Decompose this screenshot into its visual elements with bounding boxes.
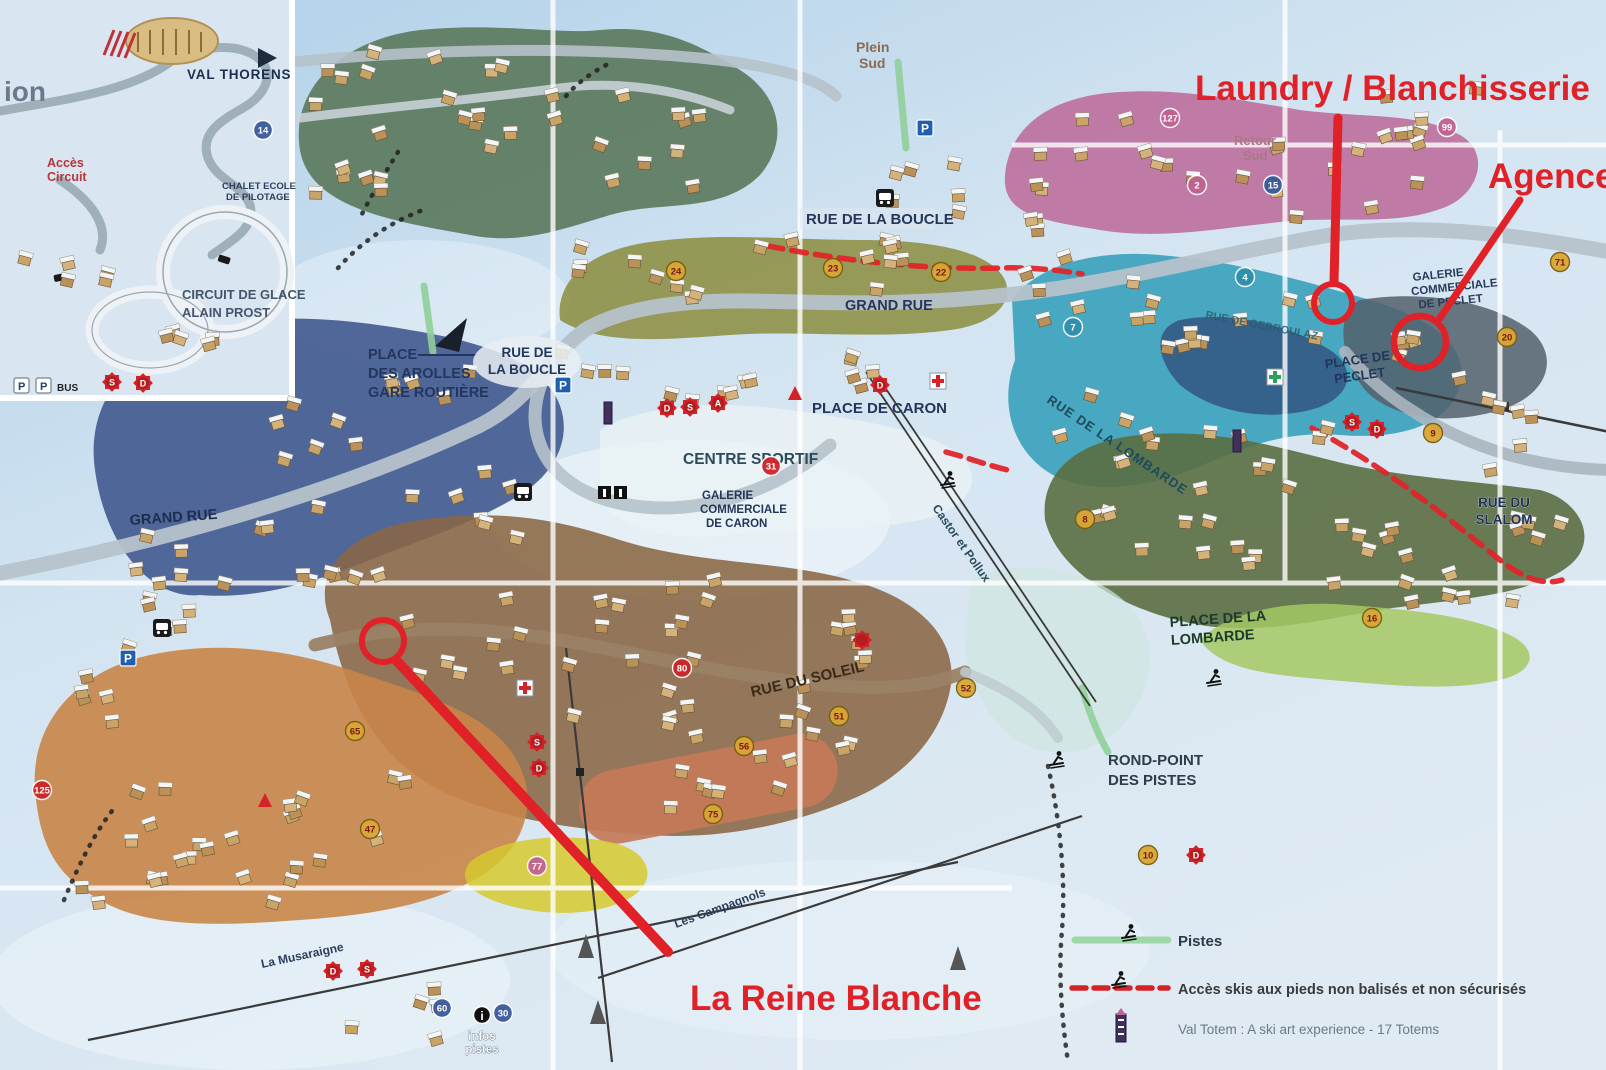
svg-text:S: S xyxy=(1349,418,1355,428)
parking-icon: P xyxy=(18,381,25,393)
parking-icon: P xyxy=(917,120,933,136)
sd-marker: D xyxy=(133,373,153,393)
svg-text:ROND-POINT: ROND-POINT xyxy=(1108,752,1203,769)
resort-name-label: VAL THORENS xyxy=(187,67,291,82)
building-number-badge: 71 xyxy=(1551,253,1570,272)
building xyxy=(405,489,420,503)
legend-acces-label: Accès skis aux pieds non balisés et non … xyxy=(1178,982,1526,998)
building xyxy=(665,581,679,594)
svg-text:8: 8 xyxy=(1082,515,1087,526)
laundry-pointer-line xyxy=(1334,118,1338,282)
building-number-badge: 22 xyxy=(932,263,951,282)
pharmacy-cross-icon xyxy=(1267,369,1283,385)
svg-text:15: 15 xyxy=(1268,181,1279,192)
parking-icon: P xyxy=(40,381,47,393)
building xyxy=(869,282,884,297)
building xyxy=(1326,576,1341,591)
building xyxy=(692,108,707,123)
building xyxy=(427,982,442,996)
building xyxy=(779,714,794,728)
svg-text:56: 56 xyxy=(739,742,750,753)
svg-text:S: S xyxy=(687,403,693,413)
building xyxy=(152,576,167,591)
building xyxy=(663,800,677,813)
building xyxy=(174,544,188,557)
building xyxy=(374,183,388,196)
svg-text:pistes: pistes xyxy=(465,1044,498,1056)
sd-marker xyxy=(852,630,872,650)
svg-text:D: D xyxy=(877,381,884,391)
building xyxy=(75,880,89,893)
svg-text:24: 24 xyxy=(671,267,682,278)
building xyxy=(289,860,304,874)
building-number-badge: 31 xyxy=(762,457,781,476)
svg-text:Sud: Sud xyxy=(1243,148,1268,163)
building xyxy=(173,568,188,582)
building-number-badge: 4 xyxy=(1236,268,1255,287)
svg-text:2: 2 xyxy=(1194,181,1199,192)
building-number-badge: 47 xyxy=(361,820,380,839)
svg-text:i: i xyxy=(480,1009,483,1023)
bus-icon xyxy=(153,619,171,637)
sd-marker: D xyxy=(1367,419,1387,439)
building xyxy=(627,254,642,268)
svg-text:PLACE: PLACE xyxy=(368,347,417,363)
legend-totem-label: Val Totem : A ski art experience - 17 To… xyxy=(1178,1022,1439,1037)
svg-text:S: S xyxy=(534,738,540,748)
sd-marker: D xyxy=(323,961,343,981)
building xyxy=(680,699,695,713)
building-number-badge: 52 xyxy=(957,679,976,698)
building xyxy=(74,684,90,699)
bus-label: BUS xyxy=(57,383,78,394)
svg-text:31: 31 xyxy=(766,462,777,473)
svg-text:SLALOM: SLALOM xyxy=(1476,512,1533,527)
building-number-badge: 56 xyxy=(735,737,754,756)
svg-text:GALERIE: GALERIE xyxy=(702,490,753,502)
svg-text:Plein: Plein xyxy=(856,39,889,55)
svg-text:75: 75 xyxy=(708,810,719,821)
building xyxy=(308,97,322,110)
svg-text:14: 14 xyxy=(258,126,269,137)
building-number-badge: 10 xyxy=(1139,846,1158,865)
building xyxy=(1032,283,1047,297)
building xyxy=(594,619,609,633)
building xyxy=(486,637,501,651)
building-number-badge: 15 xyxy=(1264,176,1283,195)
plein-sud-label: Plein Sud xyxy=(856,39,889,71)
building xyxy=(173,620,188,634)
svg-text:77: 77 xyxy=(532,862,543,873)
building xyxy=(671,107,686,121)
inset-panel: VAL THORENS ion Accès Circuit CHALET ECO… xyxy=(0,0,306,398)
svg-text:D: D xyxy=(536,764,543,774)
street-label-rue-boucle-top: RUE DE LA BOUCLE xyxy=(806,211,954,228)
svg-text:51: 51 xyxy=(834,712,845,723)
svg-text:16: 16 xyxy=(1367,614,1378,625)
svg-text:P: P xyxy=(921,122,929,136)
svg-text:P: P xyxy=(559,379,567,393)
svg-text:S: S xyxy=(109,378,115,388)
ice-circuit-label-1: CIRCUIT DE GLACE xyxy=(182,287,306,302)
building xyxy=(951,188,966,202)
svg-text:GARE ROUTIÈRE: GARE ROUTIÈRE xyxy=(368,384,489,401)
svg-text:4: 4 xyxy=(1242,273,1248,284)
building-number-badge: 75 xyxy=(704,805,723,824)
acces-circuit-label-2: Circuit xyxy=(47,170,87,184)
building xyxy=(1183,326,1197,339)
building xyxy=(312,853,328,868)
svg-text:D: D xyxy=(140,379,147,389)
svg-text:127: 127 xyxy=(1162,114,1178,125)
sd-marker: D xyxy=(529,758,549,778)
reine-blanche-annotation: La Reine Blanche xyxy=(690,979,982,1018)
building xyxy=(1029,177,1044,191)
rue-boucle-sign-2: LA BOUCLE xyxy=(488,362,566,377)
building xyxy=(1456,590,1471,605)
svg-text:D: D xyxy=(1193,851,1200,861)
ice-circuit-label-2: ALAIN PROST xyxy=(182,305,270,320)
svg-text:60: 60 xyxy=(437,1004,448,1015)
building xyxy=(1241,556,1256,570)
svg-text:P: P xyxy=(124,652,132,666)
sd-marker: S xyxy=(1342,412,1362,432)
street-label-grand-rue: GRAND RUE xyxy=(845,298,933,314)
building-number-badge: 77 xyxy=(528,857,547,876)
building xyxy=(1196,545,1211,559)
building-number-badge: 30 xyxy=(494,1004,513,1023)
rue-boucle-sign-1: RUE DE xyxy=(501,345,552,360)
building xyxy=(625,654,639,667)
building xyxy=(1414,112,1429,126)
district-olive-grandrue xyxy=(560,237,1008,339)
building-number-badge: 60 xyxy=(433,999,452,1018)
building-number-badge: 80 xyxy=(673,659,692,678)
building-number-badge: 9 xyxy=(1424,424,1443,443)
acces-circuit-label-1: Accès xyxy=(47,156,84,170)
building xyxy=(1289,210,1304,224)
svg-text:71: 71 xyxy=(1555,258,1566,269)
bus-icon xyxy=(876,189,894,207)
sd-marker: S xyxy=(680,397,700,417)
legend-pistes-label: Pistes xyxy=(1178,933,1222,950)
svg-text:DE CARON: DE CARON xyxy=(706,518,767,530)
building xyxy=(1524,410,1539,424)
resort-map: VAL THORENS ion Accès Circuit CHALET ECO… xyxy=(0,0,1606,1070)
svg-text:Sud: Sud xyxy=(859,55,885,71)
building xyxy=(296,568,310,581)
building xyxy=(598,364,612,377)
building xyxy=(1230,540,1245,554)
infos-pistes-label: infos pistes xyxy=(465,1031,498,1056)
parking-icon: P xyxy=(555,377,571,393)
svg-text:A: A xyxy=(715,399,722,409)
building xyxy=(1129,312,1144,326)
laundry-annotation: Laundry / Blanchisserie xyxy=(1195,69,1590,108)
building xyxy=(334,70,349,84)
building xyxy=(1075,113,1089,126)
svg-text:125: 125 xyxy=(34,786,51,797)
building xyxy=(1073,146,1089,161)
svg-text:infos: infos xyxy=(468,1031,495,1043)
building xyxy=(503,126,517,139)
building xyxy=(1178,515,1193,529)
sd-marker: S xyxy=(357,959,377,979)
building-number-badge: 20 xyxy=(1498,328,1517,347)
building-number-badge: 65 xyxy=(346,722,365,741)
info-icon: i xyxy=(474,1007,491,1024)
svg-text:10: 10 xyxy=(1143,851,1154,862)
building xyxy=(1394,126,1409,141)
building xyxy=(866,365,881,379)
building xyxy=(670,144,685,158)
building xyxy=(753,749,768,764)
building xyxy=(1135,543,1149,556)
svg-text:20: 20 xyxy=(1502,333,1513,344)
building xyxy=(105,714,120,728)
svg-text:7: 7 xyxy=(1070,323,1075,334)
building xyxy=(124,834,138,847)
svg-text:52: 52 xyxy=(961,684,972,695)
building xyxy=(710,784,726,799)
svg-text:S: S xyxy=(364,965,370,975)
building-number-badge: 51 xyxy=(830,707,849,726)
legend-totem-icon xyxy=(1116,1008,1126,1042)
svg-text:D: D xyxy=(330,967,337,977)
building xyxy=(1033,147,1047,160)
building xyxy=(1335,518,1349,531)
building xyxy=(321,64,335,77)
svg-text:DES PISTES: DES PISTES xyxy=(1108,772,1196,789)
building xyxy=(883,254,898,268)
sd-marker: D xyxy=(657,398,677,418)
svg-text:22: 22 xyxy=(936,268,947,279)
val-thorens-sign xyxy=(126,18,218,64)
parking-icon: P xyxy=(120,650,136,666)
svg-text:30: 30 xyxy=(498,1009,509,1020)
building-number-badge: 23 xyxy=(824,259,843,278)
building xyxy=(309,186,323,199)
svg-text:D: D xyxy=(664,404,671,414)
chalet-ecole-label-1: CHALET ECOLE xyxy=(222,181,296,192)
sd-marker: D xyxy=(870,375,890,395)
svg-text:Retour: Retour xyxy=(1234,133,1276,148)
svg-text:RUE DU: RUE DU xyxy=(1478,495,1530,510)
svg-text:99: 99 xyxy=(1442,123,1453,134)
building xyxy=(1513,438,1528,452)
svg-text:9: 9 xyxy=(1430,429,1435,440)
building-number-badge: 8 xyxy=(1076,510,1095,529)
centre-sportif-label: CENTRE SPORTIF xyxy=(683,451,818,468)
map-canvas: VAL THORENS ion Accès Circuit CHALET ECO… xyxy=(0,0,1606,1070)
building-number-badge: 125 xyxy=(33,781,52,800)
building xyxy=(841,609,855,622)
building-number-badge: 99 xyxy=(1438,118,1457,137)
svg-text:DES AROLLES: DES AROLLES xyxy=(368,366,471,382)
building-number-badge: 14 xyxy=(254,121,273,140)
building-number-badge: 16 xyxy=(1363,609,1382,628)
building xyxy=(91,895,106,910)
agence-annotation: Agence xyxy=(1488,157,1606,196)
building xyxy=(344,1020,359,1034)
building-number-badge: 127 xyxy=(1161,109,1180,128)
bus-icon xyxy=(514,483,532,501)
building xyxy=(1410,175,1425,189)
building xyxy=(182,604,197,618)
building xyxy=(260,519,275,534)
building-number-badge: 7 xyxy=(1064,318,1083,337)
building xyxy=(129,562,144,577)
chalet-ecole-label-2: DE PILOTAGE xyxy=(226,192,290,203)
svg-text:COMMERCIALE: COMMERCIALE xyxy=(700,504,787,516)
svg-text:65: 65 xyxy=(350,727,361,738)
building xyxy=(477,465,492,479)
building xyxy=(471,107,486,121)
svg-text:80: 80 xyxy=(677,664,688,675)
building xyxy=(571,264,586,279)
building xyxy=(1203,425,1218,439)
svg-text:47: 47 xyxy=(365,825,376,836)
building xyxy=(615,366,630,380)
building xyxy=(637,156,652,170)
svg-text:23: 23 xyxy=(828,264,839,275)
place-caron-label: PLACE DE CARON xyxy=(812,400,947,417)
building xyxy=(158,782,172,795)
sd-marker: S xyxy=(102,372,122,392)
building-number-badge: 24 xyxy=(667,262,686,281)
building-number-badge: 2 xyxy=(1188,176,1207,195)
partial-word-label: ion xyxy=(4,76,46,107)
sd-marker: S xyxy=(527,732,547,752)
sd-marker: A xyxy=(708,393,728,413)
sd-marker: D xyxy=(1186,845,1206,865)
building xyxy=(348,437,363,452)
building xyxy=(1126,275,1141,289)
svg-text:D: D xyxy=(1374,425,1381,435)
